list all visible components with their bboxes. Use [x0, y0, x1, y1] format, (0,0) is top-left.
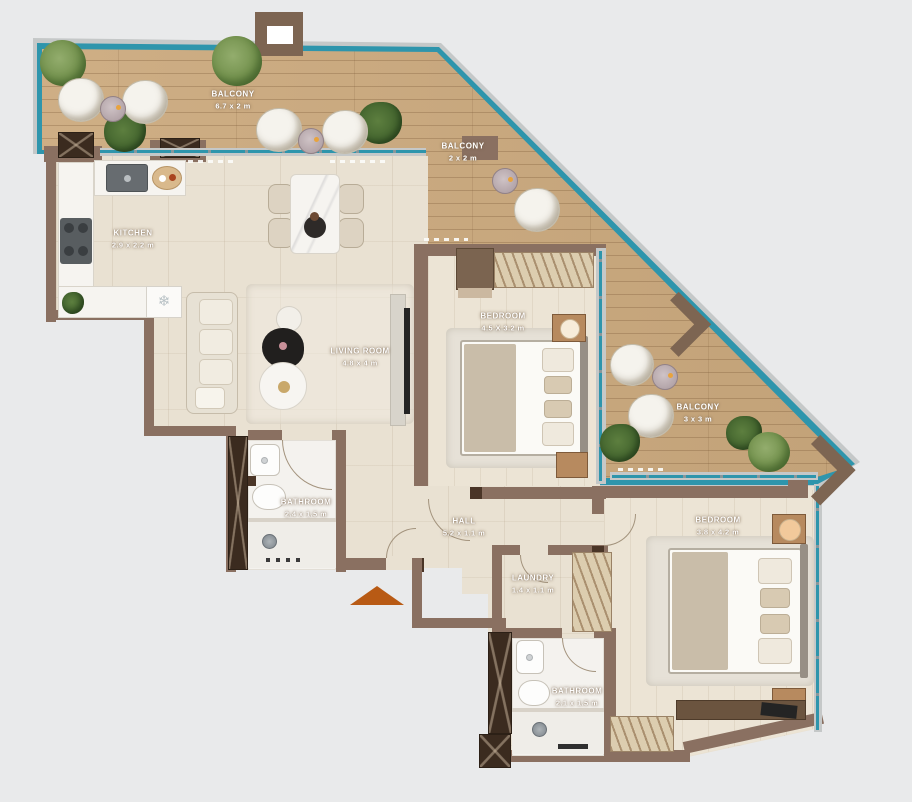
column-window — [267, 26, 293, 44]
wall-segment — [46, 152, 56, 322]
room-name: BEDROOM — [695, 515, 740, 524]
pillow — [760, 614, 790, 634]
sprig-icon — [310, 212, 319, 221]
kitchen-sink — [106, 164, 148, 192]
sliding-door-mark — [188, 160, 234, 163]
lounge-chair — [610, 344, 654, 386]
room-name: BALCONY — [676, 402, 719, 411]
pillow — [544, 400, 572, 418]
burner-icon — [78, 246, 88, 256]
wall-segment — [336, 430, 346, 572]
sofa-cushion — [199, 299, 233, 325]
bathroom-sink — [250, 444, 280, 476]
room-dims: 2.9 x 2.2 m — [112, 239, 154, 250]
bed — [460, 340, 582, 456]
room-dims: 3.8 x 4.2 m — [695, 526, 740, 537]
wall-segment — [144, 310, 154, 436]
pillow — [542, 348, 574, 372]
candle-icon — [508, 177, 513, 182]
food-icon — [169, 174, 176, 181]
service-shaft — [58, 132, 94, 158]
room-name: LIVING ROOM — [330, 346, 389, 355]
room-dims: 2.1 x 1.5 m — [552, 697, 603, 708]
drain-icon — [261, 457, 268, 464]
room-dims: 4.5 X 3.2 m — [480, 322, 525, 333]
tv-screen — [404, 308, 410, 414]
service-shaft — [479, 734, 511, 768]
lounge-chair — [58, 78, 104, 122]
room-name: BEDROOM — [480, 311, 525, 320]
wardrobe — [494, 252, 594, 288]
room-label-balcony-top: BALCONY 6.7 x 2 m — [211, 88, 254, 111]
coffee-table-large — [259, 362, 307, 410]
shower-head-icon — [532, 722, 547, 737]
service-shaft — [228, 436, 248, 570]
lounge-chair — [256, 108, 302, 152]
wall-segment — [492, 545, 520, 555]
entry-threshold — [386, 556, 414, 570]
faucet-icon — [124, 175, 131, 182]
desk-console — [676, 700, 806, 720]
room-label-kitchen: KITCHEN 2.9 x 2.2 m — [112, 227, 154, 250]
wall-segment — [414, 246, 428, 486]
glass-wall — [816, 486, 819, 730]
service-shaft — [488, 632, 512, 734]
room-name: KITCHEN — [113, 228, 152, 237]
shower-bench — [558, 744, 588, 749]
room-label-hall: HALL 5.2 x 1.1 m — [443, 515, 485, 538]
sofa-cushion — [199, 359, 233, 385]
room-label-living-room: LIVING ROOM 4.8 x 4 m — [330, 345, 389, 368]
sofa-cushion — [199, 329, 233, 355]
room-label-bathroom-2: BATHROOM 2.1 x 1.5 m — [552, 685, 603, 708]
room-dims: 2 x 2 m — [441, 152, 484, 163]
room-name: HALL — [452, 516, 475, 525]
cooktop — [60, 218, 92, 264]
nightstand — [556, 452, 588, 478]
structural-column — [255, 12, 303, 56]
wall-segment — [470, 487, 606, 499]
blanket — [672, 552, 728, 670]
shower-fixtures — [266, 558, 300, 562]
wall-segment — [604, 486, 804, 498]
side-table — [298, 128, 324, 154]
room-dims: 5.2 x 1.1 m — [443, 527, 485, 538]
candle-icon — [314, 137, 319, 142]
wall-segment — [144, 426, 236, 436]
pillow — [758, 558, 792, 584]
room-label-bedroom-1: BEDROOM 4.5 X 3.2 m — [480, 310, 525, 333]
sofa-pillow — [195, 387, 225, 409]
dining-chair — [338, 218, 364, 248]
wardrobe — [572, 552, 612, 632]
room-dims: 6.7 x 2 m — [211, 100, 254, 111]
room-name: BALCONY — [441, 141, 484, 150]
lounge-chair — [122, 80, 168, 124]
plant-icon — [748, 432, 790, 472]
room-dims: 4.8 x 4 m — [330, 357, 389, 368]
closet-box — [456, 248, 494, 290]
nightstand — [772, 514, 806, 544]
wardrobe — [610, 716, 674, 752]
burner-icon — [64, 223, 74, 233]
fridge: ❄ — [146, 286, 182, 318]
laptop-icon — [760, 702, 797, 719]
wall-segment — [248, 430, 282, 440]
wall-segment — [492, 545, 502, 633]
room-label-bathroom-1: BATHROOM 2.4 x 1.5 m — [281, 496, 332, 519]
door-jamb — [470, 487, 482, 499]
dish-icon — [278, 381, 290, 393]
burner-icon — [64, 246, 74, 256]
sofa — [186, 292, 238, 414]
room-label-laundry: LAUNDRY 1.4 x 1.1 m — [512, 572, 554, 595]
room-name: BATHROOM — [552, 686, 603, 695]
side-table — [100, 96, 126, 122]
room-name: BALCONY — [211, 89, 254, 98]
blanket — [464, 344, 516, 452]
room-dims: 3 x 3 m — [676, 413, 719, 424]
room-label-balcony-middle: BALCONY 2 x 2 m — [441, 140, 484, 163]
sliding-door-mark — [424, 238, 468, 241]
room-dims: 1.4 x 1.1 m — [512, 584, 554, 595]
floor-plan-canvas: ❄ — [0, 0, 912, 802]
cutting-board — [152, 166, 182, 190]
headboard — [800, 544, 808, 678]
tp-holder — [248, 476, 256, 486]
bathroom-sink — [516, 640, 544, 674]
pillow — [760, 588, 790, 608]
pillow — [542, 422, 574, 446]
food-icon — [159, 175, 166, 182]
room-name: BATHROOM — [281, 497, 332, 506]
room-label-bedroom-2: BEDROOM 3.8 x 4.2 m — [695, 514, 740, 537]
flower-icon — [279, 342, 287, 350]
room-dims: 2.4 x 1.5 m — [281, 508, 332, 519]
pillow — [544, 376, 572, 394]
sliding-door-mark — [618, 468, 666, 471]
side-table — [652, 364, 678, 390]
lounge-chair — [322, 110, 368, 154]
wall-segment — [811, 461, 856, 506]
shower-head-icon — [262, 534, 277, 549]
entrance-arrow — [350, 586, 404, 605]
sliding-door-mark — [330, 160, 386, 163]
lamp-icon — [779, 519, 801, 541]
room-label-balcony-right: BALCONY 3 x 3 m — [676, 401, 719, 424]
room-name: LAUNDRY — [512, 573, 554, 582]
lamp-icon — [560, 319, 580, 339]
candle-icon — [668, 373, 673, 378]
plant-icon — [212, 36, 262, 86]
toilet — [518, 680, 550, 706]
lounge-chair — [514, 188, 560, 232]
nightstand — [552, 314, 586, 342]
centerpiece-vase — [304, 216, 326, 238]
glass-wall — [100, 150, 426, 153]
drain-icon — [526, 654, 533, 661]
candle-icon — [116, 105, 121, 110]
dining-chair — [338, 184, 364, 214]
headboard — [580, 336, 588, 460]
closet-shelf — [458, 288, 492, 298]
side-table — [492, 168, 518, 194]
pillow — [758, 638, 792, 664]
burner-icon — [78, 223, 88, 233]
bed — [668, 548, 802, 674]
